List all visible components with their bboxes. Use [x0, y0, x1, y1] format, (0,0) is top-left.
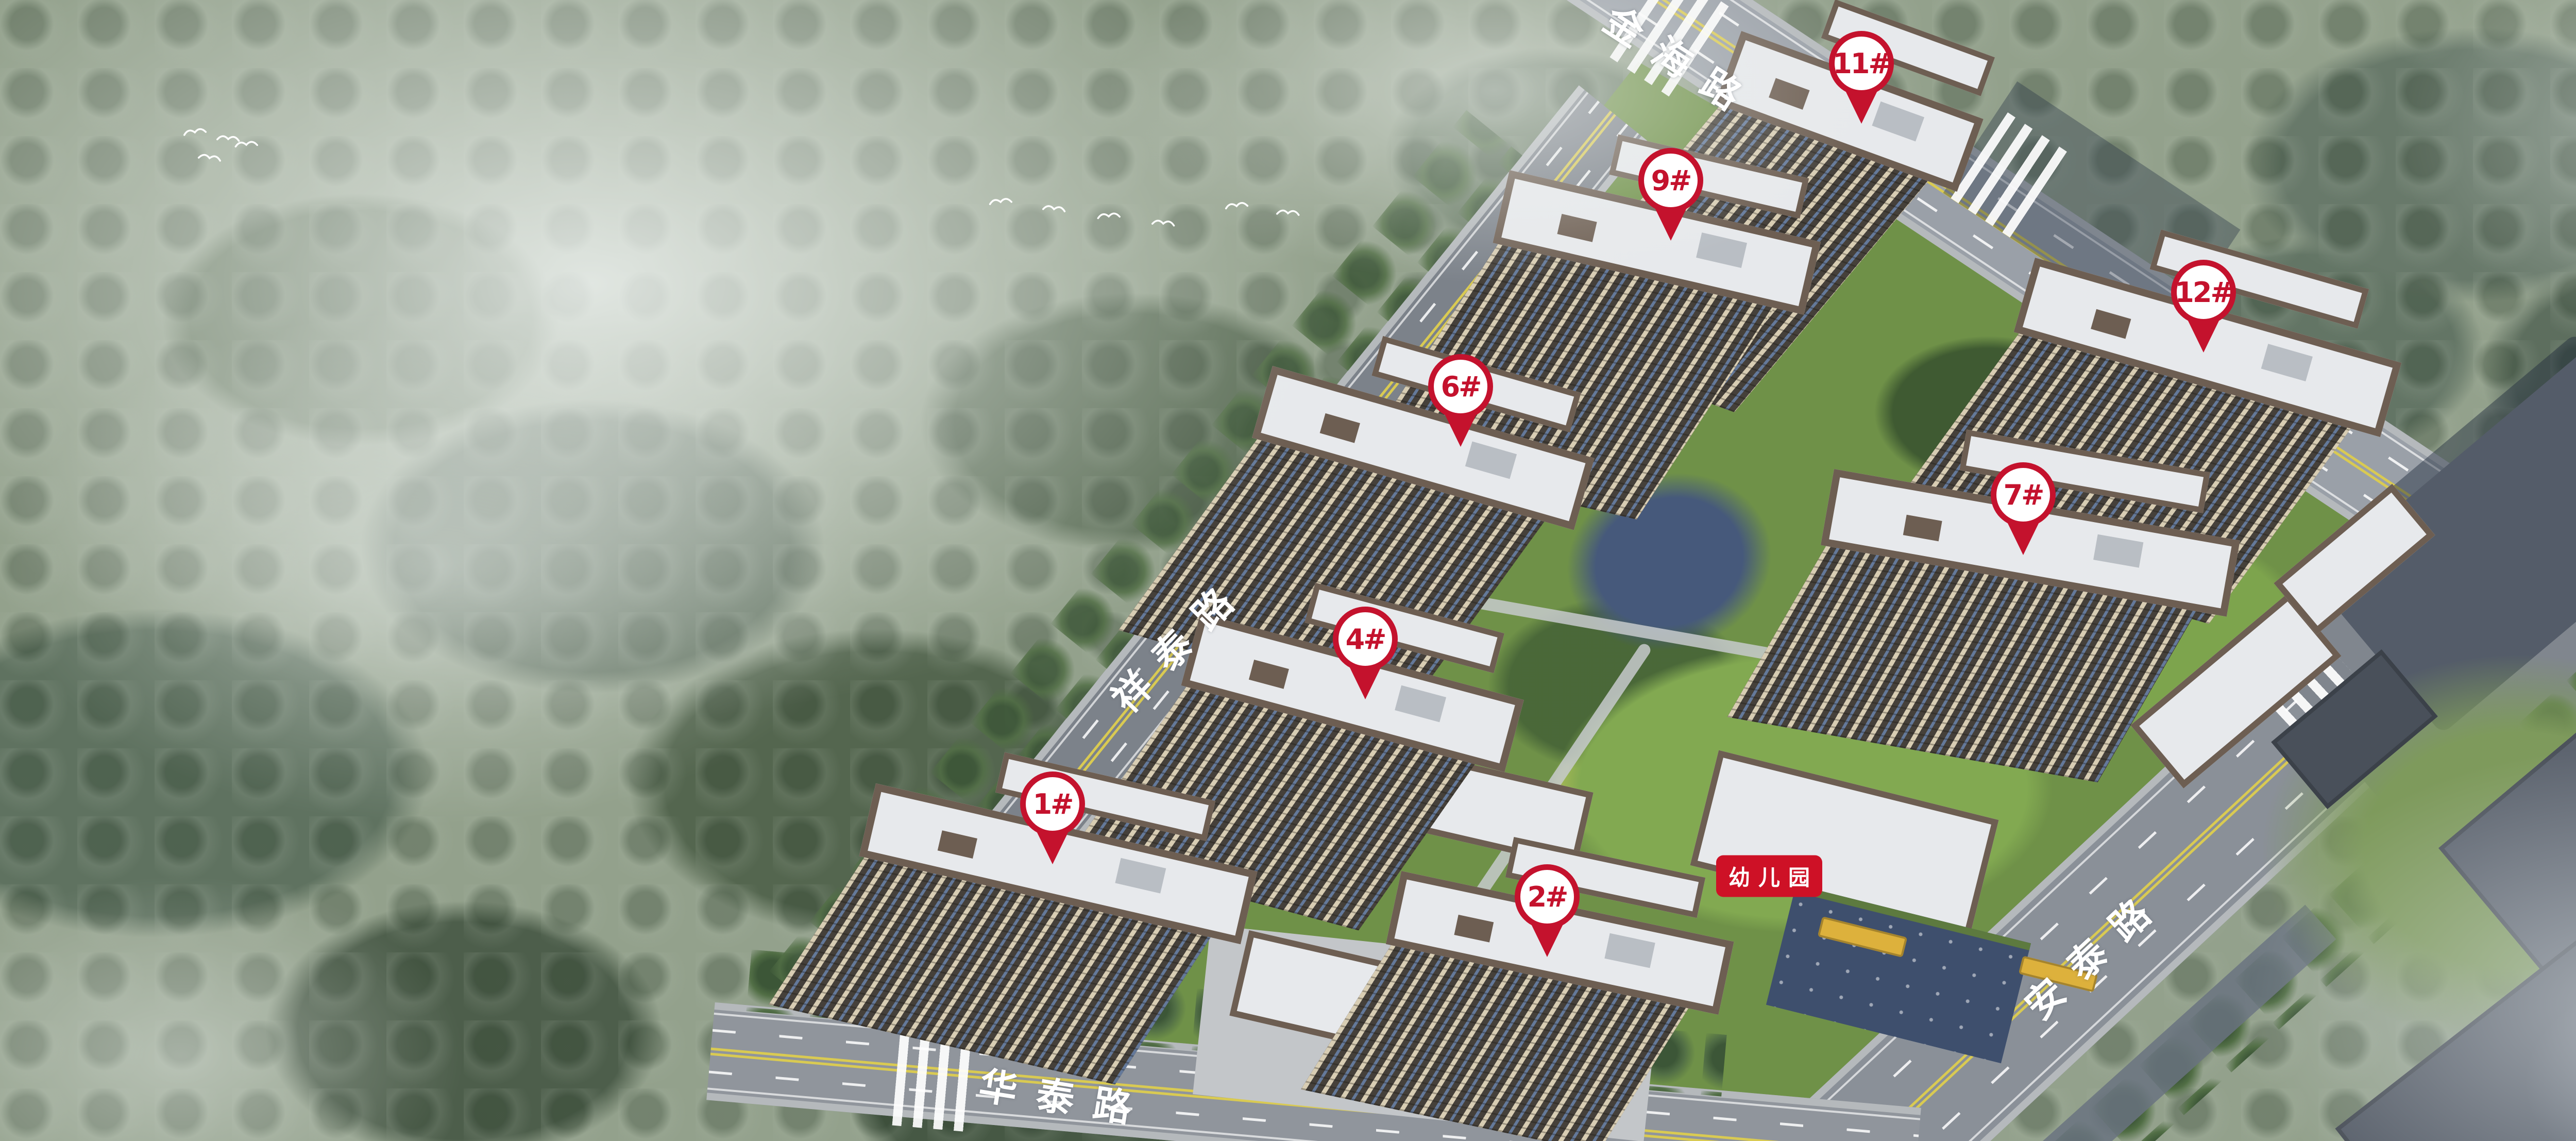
- marker-number: 9#: [1651, 164, 1691, 197]
- marker-pin-icon: 1#: [1020, 771, 1085, 836]
- marker-number: 7#: [2004, 479, 2043, 511]
- bird-icon: [197, 149, 222, 165]
- marker-number: 11#: [1833, 47, 1890, 80]
- building-marker-12: 12#: [2171, 260, 2236, 353]
- annotations-layer: 鸟瞰图 金海路祥泰路安泰路华泰路幼儿园1#2#4#6#7#9#11#12#: [0, 0, 2576, 1141]
- building-marker-9: 9#: [1638, 148, 1703, 241]
- bird-icon: [1224, 197, 1249, 213]
- marker-pin-icon: 9#: [1638, 148, 1703, 213]
- bird-icon: [1276, 205, 1300, 220]
- bird-icon: [182, 123, 207, 140]
- marker-pin-icon: 2#: [1515, 864, 1580, 929]
- marker-number: 12#: [2175, 276, 2232, 309]
- bird-icon: [1096, 208, 1121, 223]
- road-name-label: 祥泰路: [1097, 560, 1257, 723]
- marker-pin-icon: 7#: [1991, 462, 2056, 527]
- marker-number: 2#: [1528, 881, 1567, 913]
- bird-icon: [1042, 200, 1066, 216]
- kindergarten-label: 幼儿园: [1716, 855, 1822, 897]
- marker-pin-icon: 12#: [2171, 260, 2236, 325]
- road-name-label: 华泰路: [976, 1055, 1156, 1136]
- building-marker-4: 4#: [1333, 607, 1398, 699]
- building-marker-11: 11#: [1829, 31, 1894, 124]
- marker-pin-icon: 4#: [1333, 607, 1398, 672]
- road-name-label: 安泰路: [2011, 871, 2175, 1030]
- building-marker-1: 1#: [1020, 771, 1085, 864]
- marker-number: 4#: [1346, 623, 1385, 656]
- building-marker-7: 7#: [1991, 462, 2056, 555]
- marker-number: 6#: [1441, 371, 1481, 403]
- road-name-label: 金海路: [1595, 0, 1770, 131]
- marker-pin-icon: 6#: [1428, 354, 1493, 419]
- building-marker-2: 2#: [1515, 864, 1580, 957]
- aerial-rendering: 鸟瞰图 金海路祥泰路安泰路华泰路幼儿园1#2#4#6#7#9#11#12#: [0, 0, 2576, 1141]
- marker-pin-icon: 11#: [1829, 31, 1894, 96]
- bird-icon: [234, 136, 259, 151]
- bird-icon: [988, 193, 1013, 209]
- marker-number: 1#: [1033, 788, 1073, 820]
- building-marker-6: 6#: [1428, 354, 1493, 447]
- bird-icon: [1151, 215, 1176, 230]
